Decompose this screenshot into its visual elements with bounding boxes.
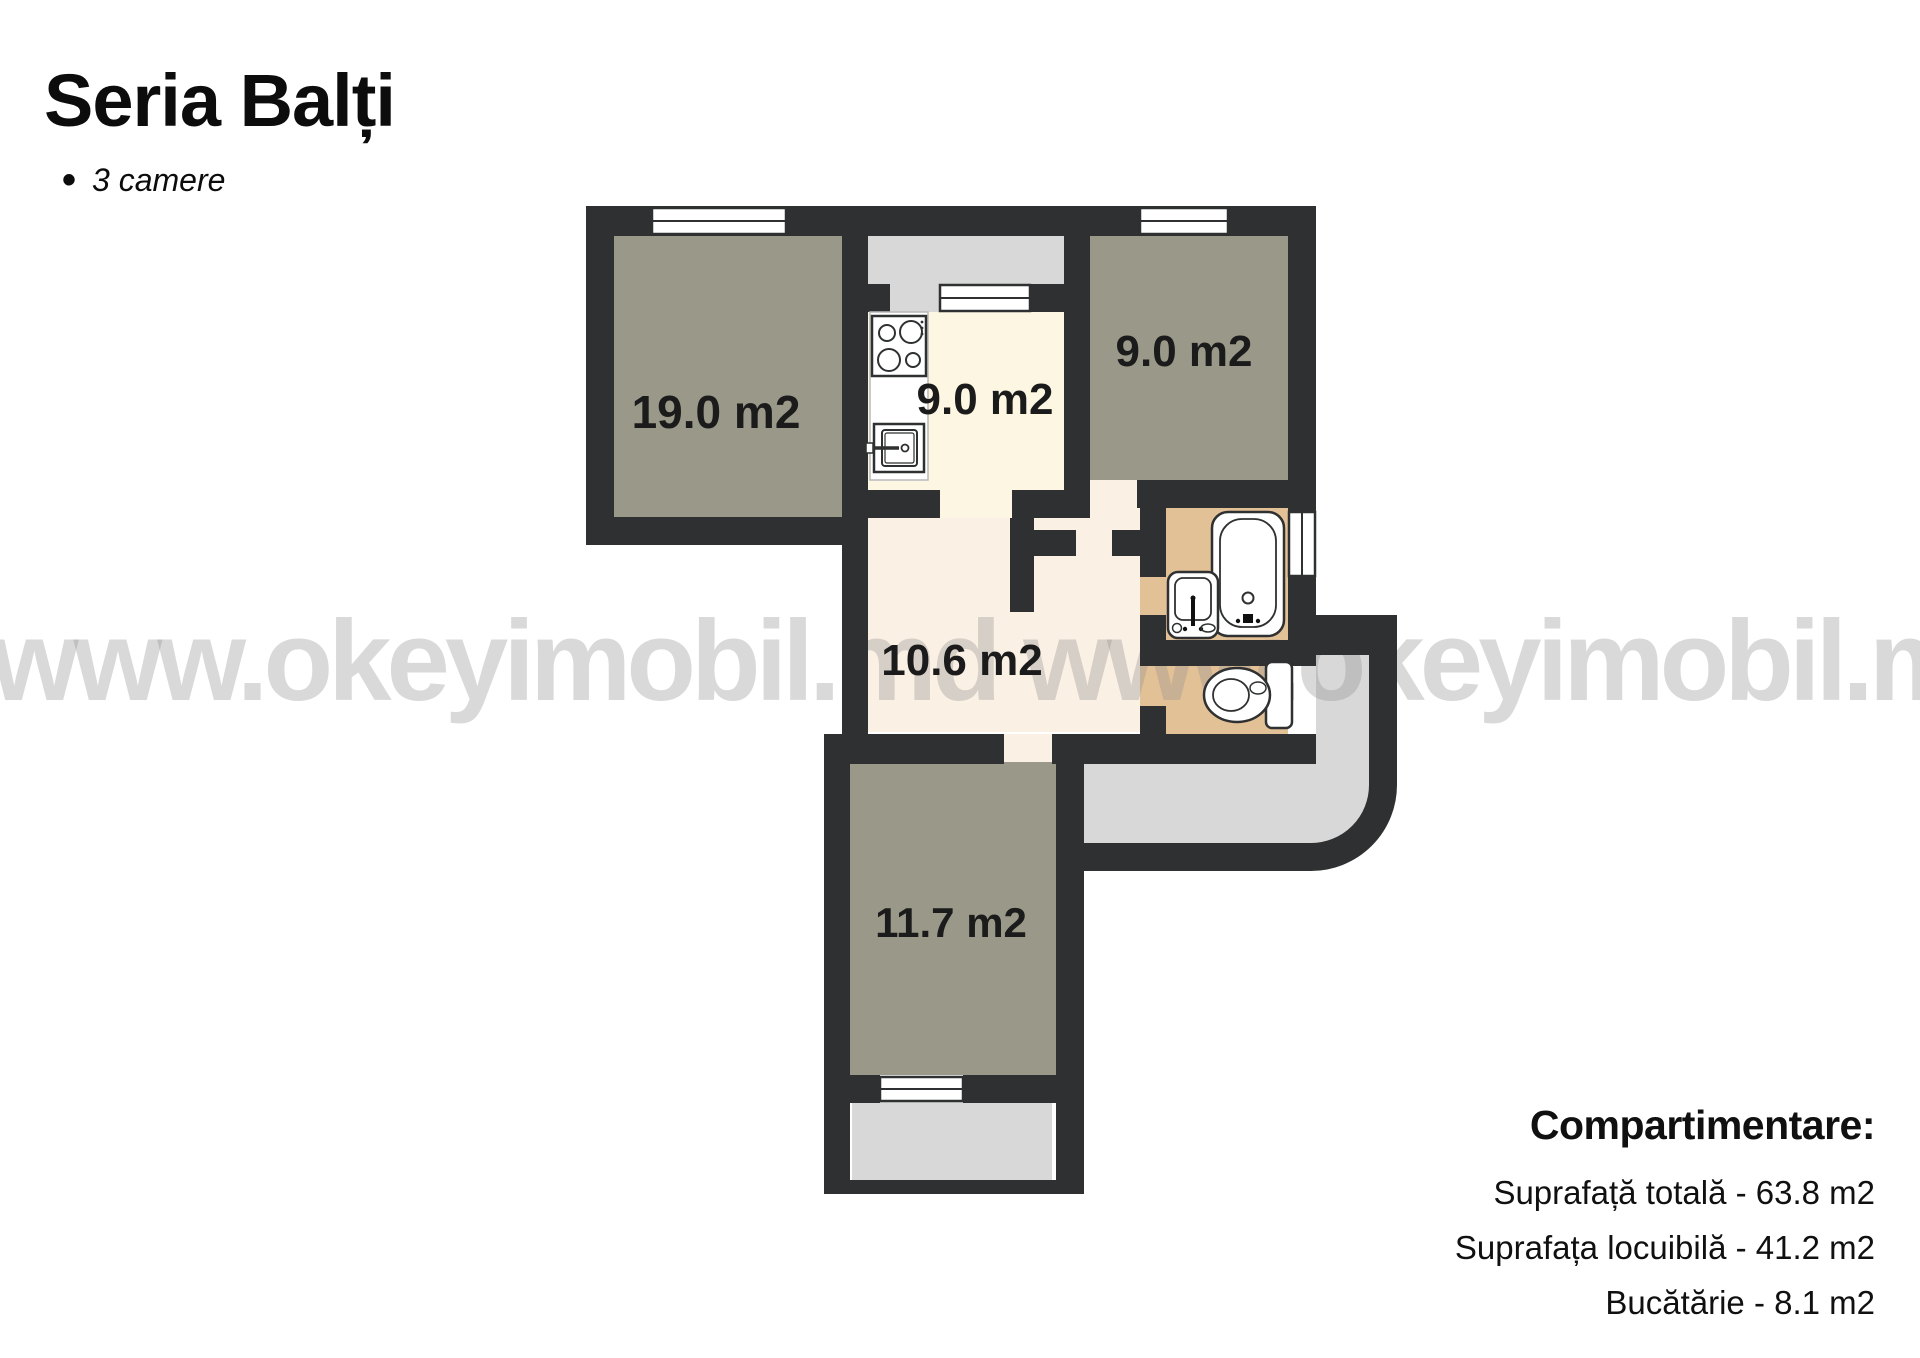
room-label-bedroom2: 11.7 m2 — [875, 899, 1027, 947]
wall-left — [586, 206, 614, 545]
wall-kitchen-bedroom1 — [1064, 206, 1090, 518]
room-label-living: 19.0 m2 — [632, 385, 801, 439]
stove-icon — [872, 316, 926, 376]
window-bedroom1 — [1140, 208, 1228, 234]
wall-kitchen-bottom-b — [1012, 490, 1064, 518]
wall-hall-stub-c — [1112, 530, 1140, 556]
page-title: Seria Balți — [44, 58, 395, 143]
details-title: Compartimentare: — [1455, 1102, 1875, 1149]
wall-wc-left-stub — [1140, 706, 1166, 734]
details-block: Compartimentare: Suprafață totală - 63.8… — [1455, 1102, 1875, 1330]
window-bedroom2 — [880, 1077, 963, 1101]
wall-right-lower — [1288, 576, 1316, 640]
details-item-total: Suprafață totală - 63.8 m2 — [1455, 1165, 1875, 1220]
wall-entry-a — [868, 284, 890, 312]
wall-bedroom2-bottom-a — [850, 1075, 880, 1103]
window-kitchen — [940, 285, 1030, 311]
wall-bedroom2-bottom-b — [963, 1075, 1056, 1103]
wall-hall-stub-a — [1010, 518, 1034, 612]
wall-bath-left-a — [1140, 480, 1166, 577]
wall-balcony-bottom-outer — [824, 1180, 1082, 1194]
room-label-hallway: 10.6 m2 — [881, 636, 1042, 686]
bath-sink-icon — [1168, 572, 1218, 638]
bullet-icon: • — [62, 160, 76, 200]
floorplan-poster: Seria Balți • 3 camere — [0, 0, 1920, 1358]
wall-balcony-top — [1316, 615, 1397, 655]
wall-bedroom2-right — [1056, 734, 1084, 1194]
kitchen-sink-icon — [866, 424, 924, 472]
toilet-icon — [1204, 662, 1292, 728]
room-label-bedroom1: 9.0 m2 — [1116, 327, 1253, 377]
wall-kitchen-bottom-a — [868, 490, 940, 518]
window-bathroom — [1289, 512, 1315, 576]
bathroom-fixtures — [1168, 512, 1292, 728]
details-item-livable: Suprafața locuibilă - 41.2 m2 — [1455, 1220, 1875, 1275]
wall-entry-b — [1030, 284, 1064, 312]
wall-wc-bottom — [1084, 734, 1316, 764]
subtitle-row: • 3 camere — [62, 160, 225, 200]
wall-bath-left-b — [1140, 615, 1166, 640]
wall-living-kitchen — [842, 206, 868, 764]
wall-hall-bottom-a — [824, 734, 1004, 764]
subtitle: 3 camere — [92, 162, 225, 199]
wall-living-bottom — [586, 517, 868, 545]
wall-bedroom2-left — [824, 734, 850, 1194]
wall-right-upper — [1288, 206, 1316, 512]
room-label-kitchen: 9.0 m2 — [917, 375, 1054, 425]
bathtub-icon — [1212, 512, 1284, 636]
wall-hall-stub-b — [1034, 530, 1076, 556]
details-item-kitchen: Bucătărie - 8.1 m2 — [1455, 1275, 1875, 1330]
window-living — [652, 208, 786, 234]
